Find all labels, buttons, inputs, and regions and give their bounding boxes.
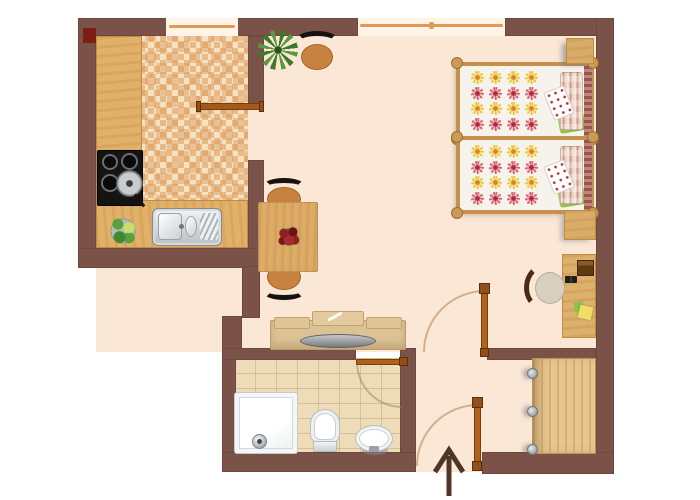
- nightstand-middle: [564, 210, 596, 240]
- interior-door-leaf: [481, 290, 488, 352]
- tv-cabinet-side: [274, 317, 310, 329]
- wall-marker-red: [83, 28, 96, 43]
- desk-monitor: [577, 260, 594, 276]
- bathroom-door-leaf: [356, 359, 402, 365]
- entrance-door-leaf: [474, 404, 481, 466]
- bed-headboard: [584, 138, 592, 212]
- sink-faucet: [179, 224, 184, 229]
- yellow-flower: [507, 176, 520, 189]
- kitchen-window-glass: [169, 25, 235, 28]
- stove-burner: [121, 153, 138, 170]
- washbasin-tap: [369, 446, 379, 452]
- toilet-bowl: [310, 409, 340, 444]
- kitchen-mosaic-floor: [142, 36, 248, 208]
- desk-note-yellow: [578, 305, 593, 320]
- yellow-flower: [489, 102, 502, 115]
- wall-left: [78, 18, 96, 268]
- bed-flower-grid: [468, 145, 540, 205]
- sliding-door-cap: [196, 101, 201, 112]
- floor-plan: [0, 0, 700, 500]
- tv-cabinet-side: [366, 317, 402, 329]
- desk-keyboard: [565, 276, 577, 283]
- yellow-flower: [525, 145, 538, 158]
- yellow-flower: [489, 145, 502, 158]
- pink-flower: [525, 192, 538, 205]
- pink-flower: [507, 87, 520, 100]
- wall-chair-back: [295, 31, 339, 51]
- yellow-flower: [525, 71, 538, 84]
- wall-top-kitchen-b: [237, 18, 358, 36]
- twin-bed-2: [456, 136, 594, 214]
- yellow-flower: [471, 71, 484, 84]
- bed-post: [451, 207, 463, 219]
- potted-plant: [258, 30, 298, 70]
- pink-flower: [471, 118, 484, 131]
- flower-centerpiece: [276, 224, 302, 250]
- pan: [116, 170, 143, 197]
- pink-flower: [525, 161, 538, 174]
- pink-flower: [489, 87, 502, 100]
- shower-drain-dot: [257, 439, 262, 444]
- pink-flower: [489, 192, 502, 205]
- wall-bottom-right: [482, 452, 614, 474]
- wall-right: [596, 18, 614, 474]
- bed-post: [451, 131, 463, 143]
- pink-flower: [507, 161, 520, 174]
- yellow-flower: [489, 71, 502, 84]
- dining-chair-north-back: [263, 178, 305, 194]
- pink-flower: [471, 192, 484, 205]
- bed-flower-grid: [468, 71, 540, 131]
- vegetable-plate: [106, 214, 140, 248]
- nightstand-top: [566, 38, 594, 64]
- entrance-arrow-icon: [429, 440, 469, 498]
- yellow-flower: [489, 176, 502, 189]
- pink-flower: [471, 161, 484, 174]
- kitchen-sliding-door: [198, 103, 262, 110]
- yellow-flower: [471, 145, 484, 158]
- entrance-arrow: [429, 440, 469, 498]
- pink-flower: [507, 118, 520, 131]
- pink-flower: [525, 118, 538, 131]
- interior-door-hinge: [480, 348, 489, 357]
- dining-chair-south-back: [263, 284, 305, 300]
- sink-drainer: [200, 213, 218, 240]
- wardrobe-knob: [527, 444, 538, 455]
- yellow-flower: [507, 71, 520, 84]
- wall-bottom-bath: [222, 452, 416, 472]
- bathroom-door-hinge: [399, 357, 408, 366]
- pink-flower: [525, 87, 538, 100]
- yellow-flower: [525, 176, 538, 189]
- yellow-flower: [471, 102, 484, 115]
- bed-headboard: [584, 64, 592, 138]
- pink-flower: [507, 192, 520, 205]
- twin-bed-1: [456, 62, 594, 140]
- bed-post: [587, 131, 599, 143]
- stove-burner: [102, 154, 118, 170]
- yellow-flower: [525, 102, 538, 115]
- yellow-flower: [507, 145, 520, 158]
- wall-below-kitchen: [242, 266, 260, 318]
- yellow-flower: [507, 102, 520, 115]
- wardrobe-knob: [527, 406, 538, 417]
- tv: [300, 334, 376, 348]
- wall-kitchen-bottom: [78, 248, 264, 268]
- wardrobe-knob: [527, 368, 538, 379]
- bed-post: [451, 57, 463, 69]
- entrance-door-hinge: [472, 461, 482, 471]
- pink-flower: [471, 87, 484, 100]
- wardrobe: [532, 358, 596, 454]
- sliding-door-cap: [259, 101, 264, 112]
- toilet-base: [313, 441, 337, 452]
- sink-basin-right: [185, 216, 197, 237]
- entrance-door-hinge: [472, 397, 483, 408]
- living-window-mullion: [429, 22, 434, 29]
- pink-flower: [489, 161, 502, 174]
- interior-door-hinge: [479, 283, 490, 294]
- pink-flower: [489, 118, 502, 131]
- yellow-flower: [471, 176, 484, 189]
